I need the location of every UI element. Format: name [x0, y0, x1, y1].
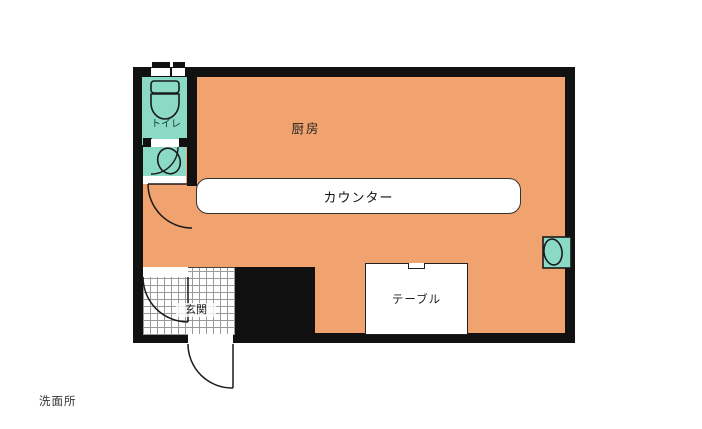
divider-wall-right — [179, 138, 197, 147]
table-label: テーブル — [392, 291, 441, 307]
entrance-room-label: 玄関 — [176, 303, 216, 317]
window-mullion — [170, 68, 172, 76]
entrance-door-swing — [188, 344, 233, 388]
window — [151, 68, 185, 76]
kitchen-room-label: 厨房 — [276, 118, 336, 137]
storage-area — [234, 267, 315, 343]
washroom-label: 洗面所 — [39, 393, 77, 409]
toilet-room — [142, 77, 188, 145]
floor-plan-canvas: カウンター テーブル — [0, 0, 702, 429]
toilet-room-label: トイレ — [147, 115, 185, 130]
entrance-inner-opening — [143, 267, 188, 277]
entrance-door-opening — [188, 334, 233, 344]
table: テーブル — [365, 263, 468, 335]
sink-room — [143, 147, 186, 177]
sink-room-doorway — [143, 176, 186, 184]
entrance-tiled-floor — [143, 267, 235, 335]
counter-label: カウンター — [323, 187, 393, 206]
counter: カウンター — [196, 178, 521, 214]
toilet-door-opening — [151, 139, 179, 147]
inner-wall — [187, 77, 197, 186]
table-notch — [408, 263, 425, 269]
